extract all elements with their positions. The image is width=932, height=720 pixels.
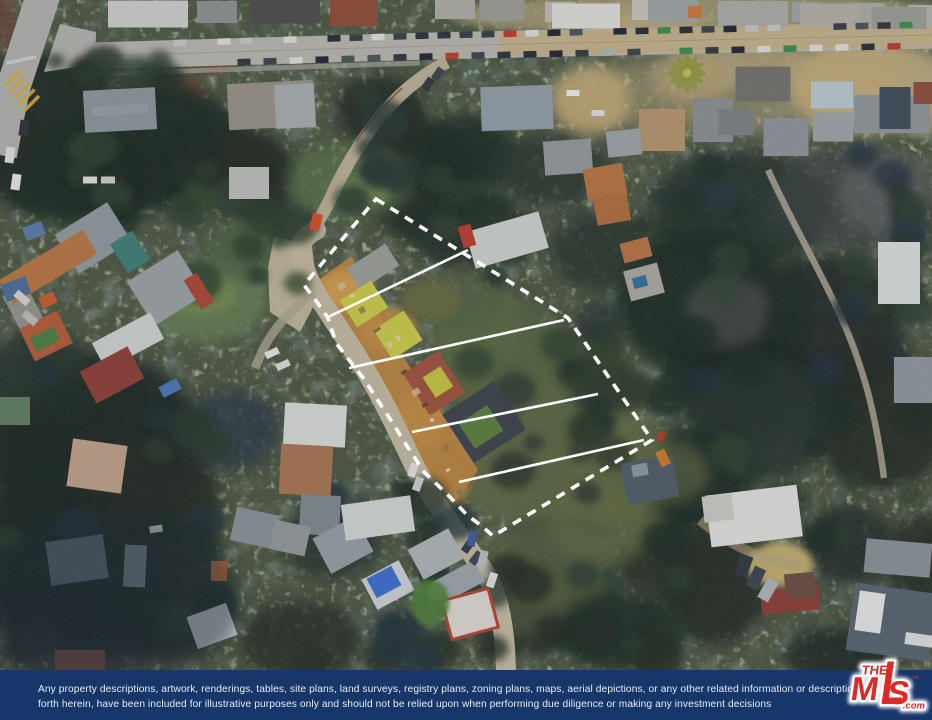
svg-text:M: M: [849, 671, 882, 708]
svg-text:.com: .com: [902, 701, 926, 712]
svg-text:TM: TM: [912, 675, 919, 680]
